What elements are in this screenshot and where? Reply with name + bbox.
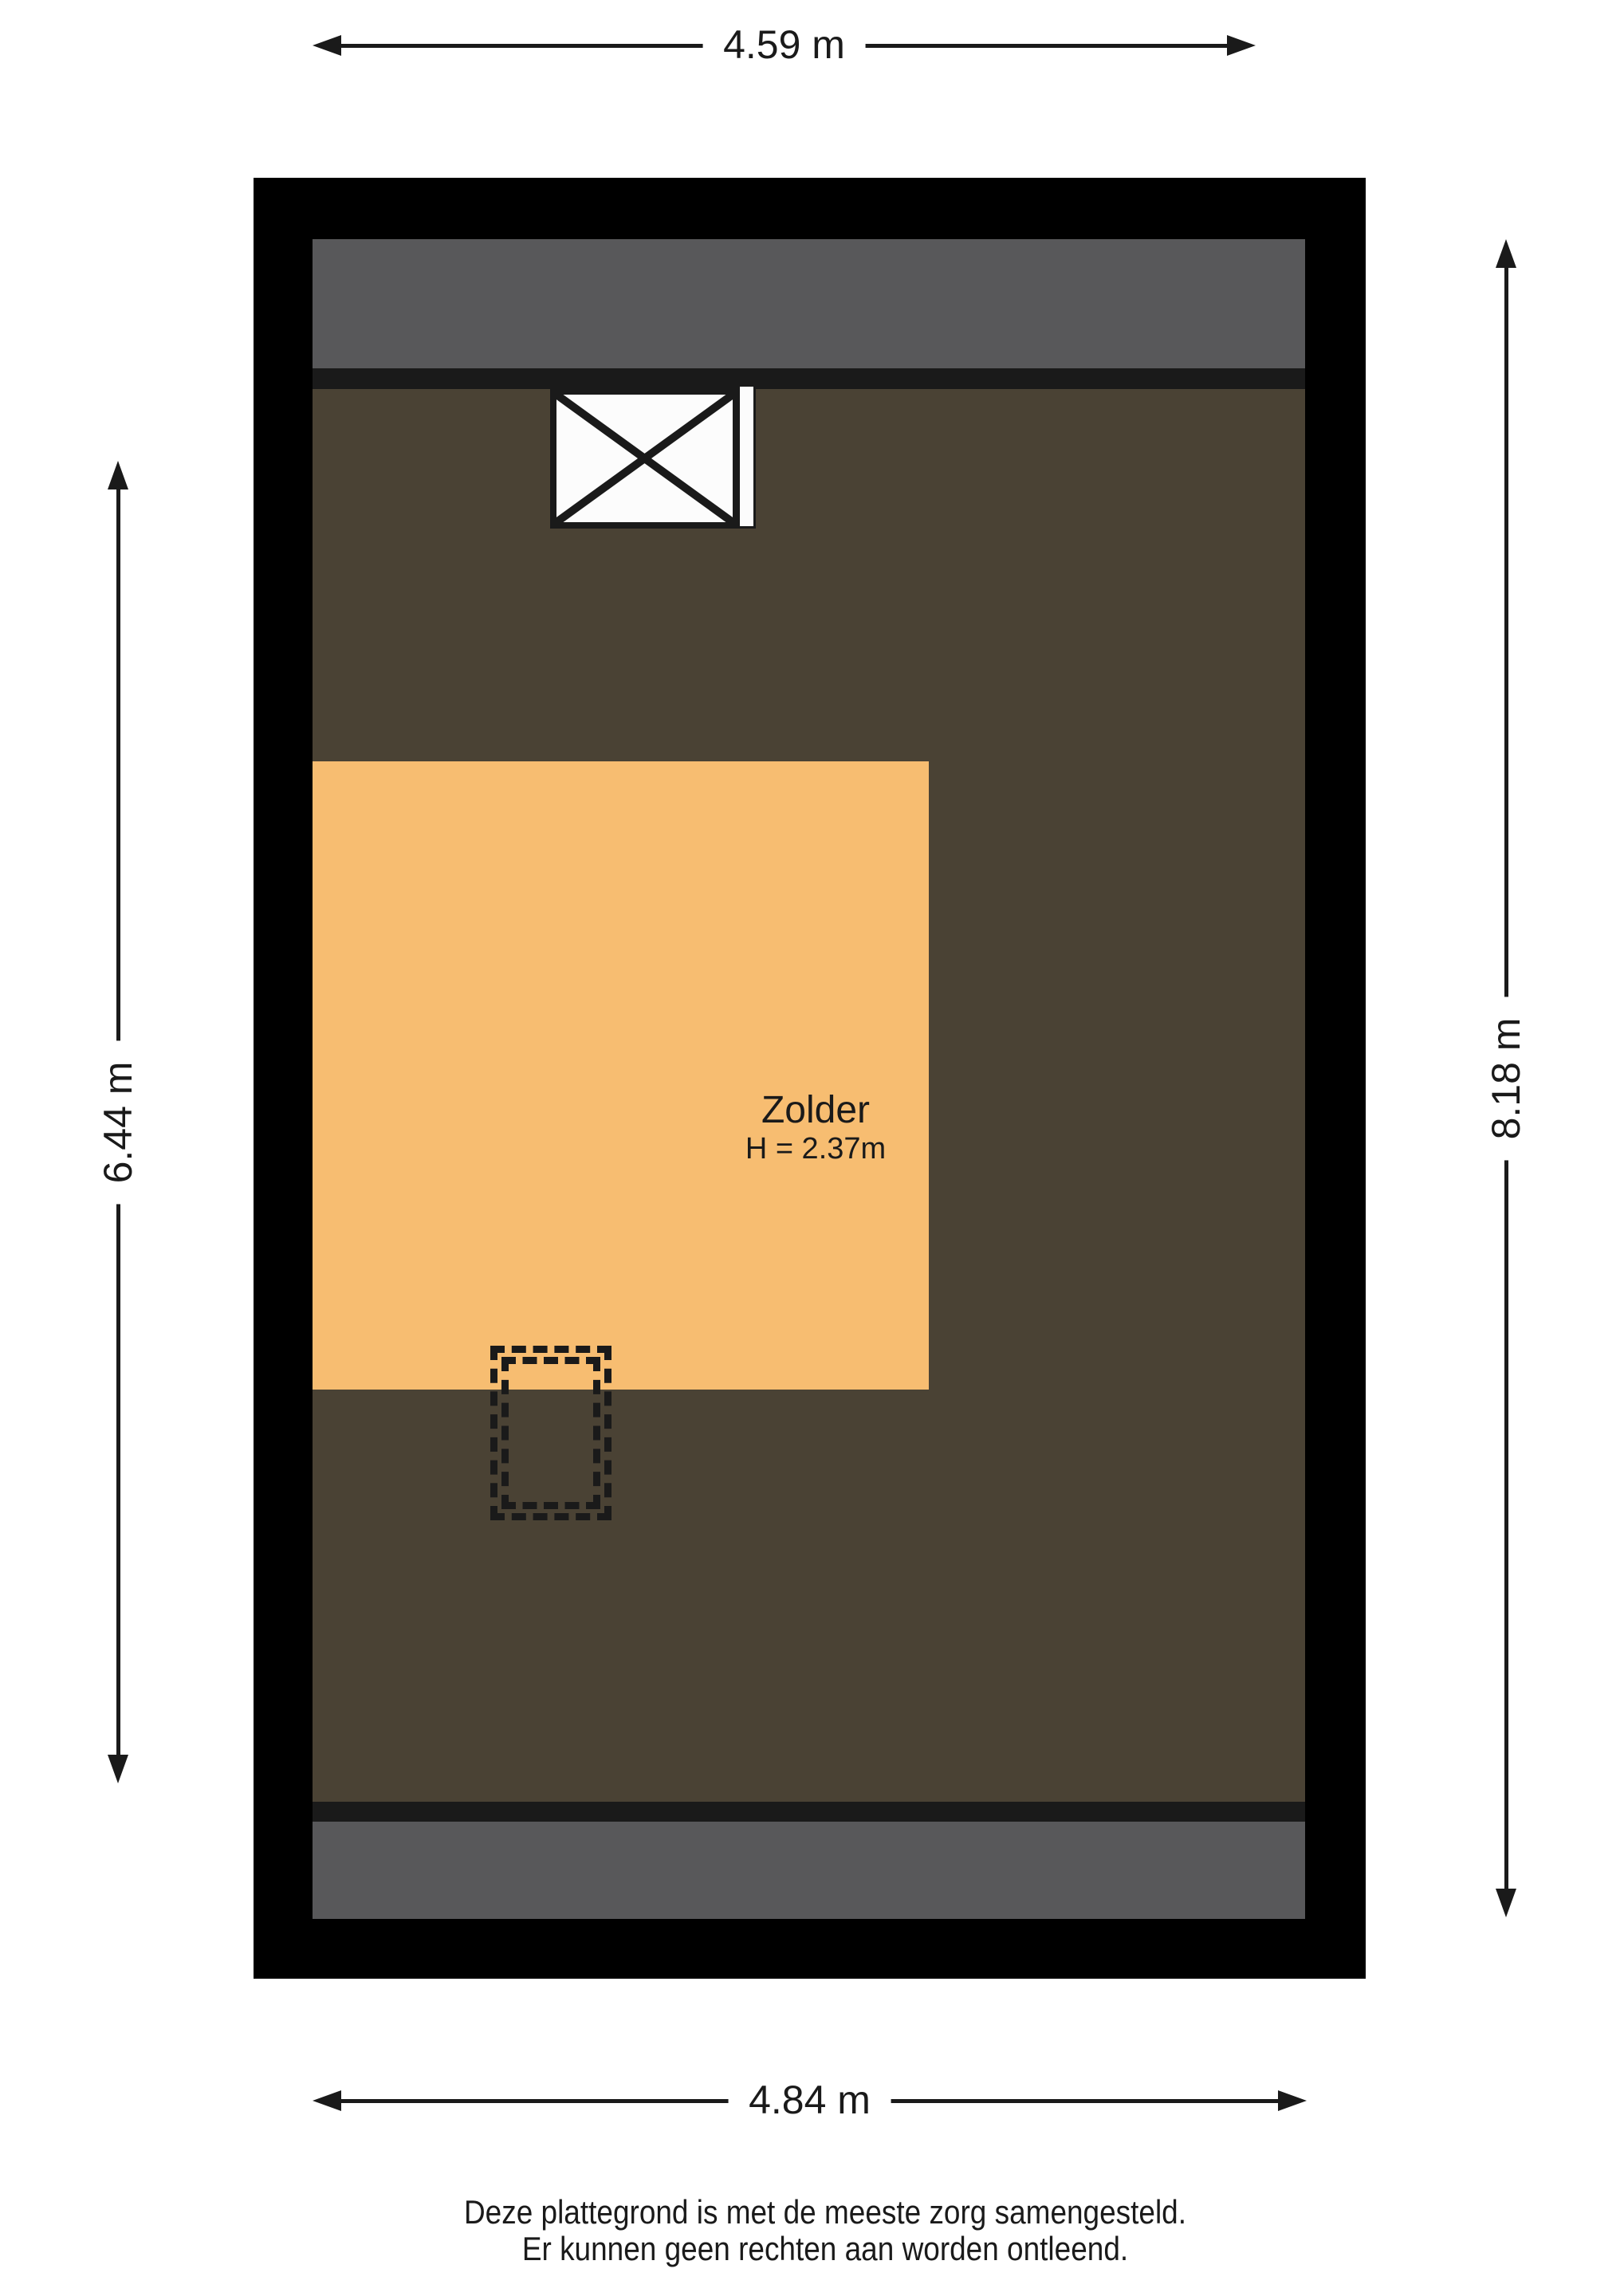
roof-slope-bottom [313,1822,1305,1919]
arrowhead-down-icon [1496,1889,1516,1917]
arrowhead-right-icon [1227,35,1256,56]
dimension-label-left: 6.44 m [95,1040,141,1204]
room-ceiling-height: H = 2.37m [656,1132,975,1166]
arrowhead-down-icon [108,1755,128,1783]
knee-wall-top [313,368,1305,389]
disclaimer-line-1: Deze plattegrond is met de meeste zorg s… [122,2194,1528,2231]
room-label: Zolder H = 2.37m [656,1089,975,1166]
floorplan-page: 4.59 m 6.44 m 8.18 m 4.84 m [0,0,1624,2296]
dimension-arrow-left: 6.44 m [107,461,129,1783]
dimension-label-right: 8.18 m [1483,997,1529,1160]
dimension-arrow-right: 8.18 m [1495,239,1517,1917]
disclaimer-line-2: Er kunnen geen rechten aan worden ontlee… [122,2231,1528,2267]
dimension-label-top: 4.59 m [702,22,866,68]
room-name: Zolder [656,1089,975,1132]
loft-hatch-dashed-icon [490,1346,611,1520]
dimension-arrow-bottom: 4.84 m [313,2090,1307,2112]
arrowhead-right-icon [1278,2090,1307,2111]
roof-slope-top [313,239,1305,368]
loft-hatch-inner-outline [501,1357,600,1509]
roof-window-sill [737,384,756,529]
window-cross-icon [556,395,733,522]
dimension-arrow-top: 4.59 m [313,34,1256,57]
knee-wall-bottom [313,1802,1305,1822]
disclaimer: Deze plattegrond is met de meeste zorg s… [26,2194,1624,2267]
room-zolder [313,761,929,1390]
outer-wall: Zolder H = 2.37m [254,178,1366,1979]
dimension-label-bottom: 4.84 m [728,2077,891,2123]
roof-window-icon [550,388,739,529]
attic-floor-area: Zolder H = 2.37m [313,239,1305,1919]
